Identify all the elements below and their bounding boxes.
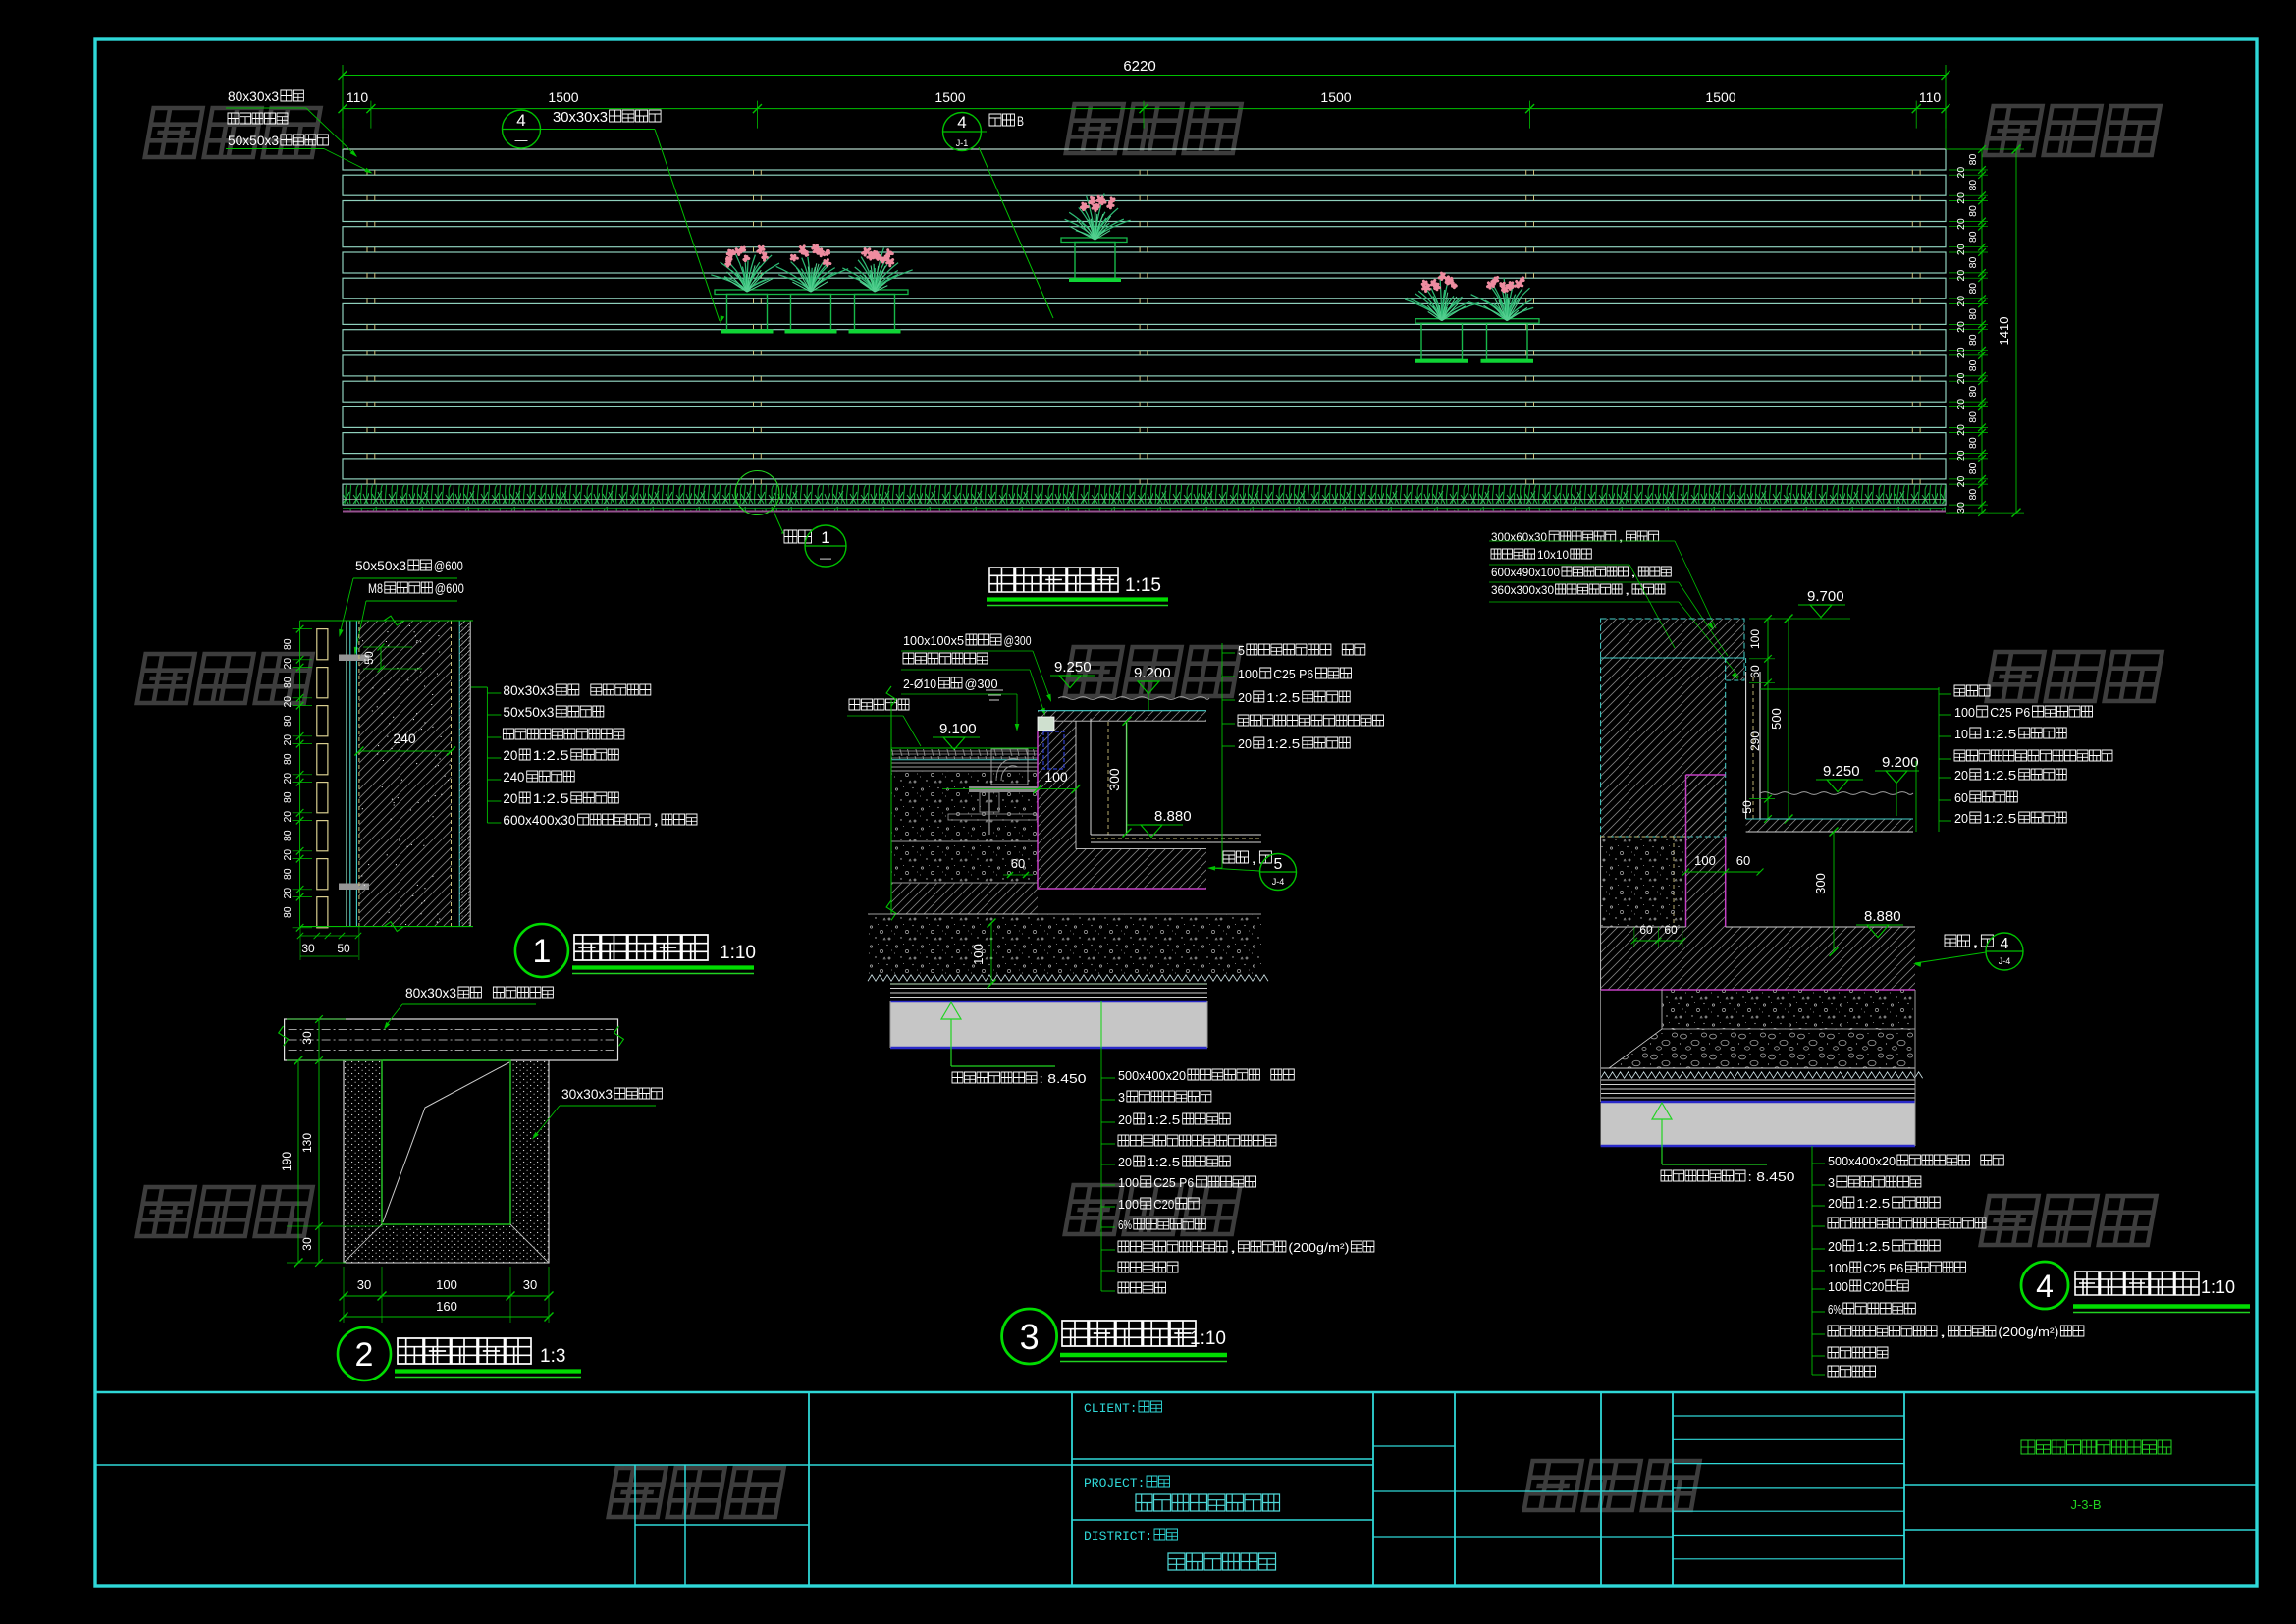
svg-text:100: 100 <box>1118 1197 1139 1212</box>
svg-text:1: 1 <box>532 933 551 970</box>
svg-text:20: 20 <box>1828 1239 1842 1254</box>
svg-text:50x50x3: 50x50x3 <box>355 558 406 573</box>
svg-text:1:2.5: 1:2.5 <box>1856 1196 1890 1211</box>
svg-text:: 8.450: : 8.450 <box>1040 1071 1087 1086</box>
svg-text:DISTRICT:: DISTRICT: <box>1084 1529 1152 1543</box>
svg-text:240: 240 <box>503 769 524 785</box>
svg-text:C25 P6: C25 P6 <box>1153 1175 1194 1190</box>
svg-text:1:10: 1:10 <box>1190 1328 1226 1349</box>
svg-text:20: 20 <box>1955 347 1967 358</box>
svg-text:80: 80 <box>1967 437 1979 449</box>
svg-text:CLIENT:: CLIENT: <box>1084 1401 1138 1416</box>
svg-text:100: 100 <box>1238 667 1258 681</box>
svg-text:,: , <box>1230 1240 1237 1255</box>
svg-text:—: — <box>515 133 528 147</box>
svg-text:20: 20 <box>1955 244 1967 255</box>
svg-text:80: 80 <box>1967 411 1979 423</box>
svg-text:60: 60 <box>1011 856 1025 871</box>
svg-text:1: 1 <box>821 528 829 547</box>
svg-text:J-1: J-1 <box>956 138 969 148</box>
svg-text:@600: @600 <box>434 558 463 573</box>
svg-text:60: 60 <box>1954 790 1968 805</box>
svg-text:100: 100 <box>1044 769 1068 785</box>
svg-text:3: 3 <box>1020 1317 1040 1357</box>
svg-text:4: 4 <box>957 113 966 132</box>
svg-text:50: 50 <box>337 942 350 955</box>
svg-text:1:2.5: 1:2.5 <box>533 790 569 806</box>
svg-text:80: 80 <box>1967 489 1979 501</box>
svg-text:M8: M8 <box>368 580 383 596</box>
svg-text:20: 20 <box>1238 736 1252 751</box>
svg-text:190: 190 <box>280 1152 294 1171</box>
svg-text:30: 30 <box>357 1277 371 1292</box>
svg-text:1500: 1500 <box>1705 89 1735 105</box>
svg-text:20: 20 <box>282 849 294 861</box>
svg-text:30: 30 <box>1955 502 1967 514</box>
svg-text:@300: @300 <box>965 677 998 691</box>
svg-text:80: 80 <box>282 830 294 841</box>
svg-text:20: 20 <box>1955 424 1967 436</box>
svg-text:5: 5 <box>1274 856 1283 873</box>
svg-text:50: 50 <box>1740 800 1754 814</box>
svg-text:80: 80 <box>1967 283 1979 295</box>
svg-text:300x60x30: 300x60x30 <box>1491 530 1547 544</box>
svg-text:C25 P6: C25 P6 <box>1863 1261 1903 1275</box>
svg-text:9.200: 9.200 <box>1882 754 1919 771</box>
svg-text:@600: @600 <box>435 580 464 596</box>
svg-text:20: 20 <box>282 658 294 670</box>
svg-text:3: 3 <box>1828 1175 1835 1190</box>
svg-text:1:3: 1:3 <box>540 1346 565 1367</box>
svg-text:80: 80 <box>282 677 294 688</box>
svg-text:80: 80 <box>1967 231 1979 243</box>
svg-text:100: 100 <box>1748 629 1762 649</box>
svg-text:100: 100 <box>1694 853 1716 868</box>
svg-text:500x400x20: 500x400x20 <box>1118 1068 1186 1083</box>
svg-text:20: 20 <box>1118 1112 1132 1127</box>
svg-text:80x30x3: 80x30x3 <box>228 88 279 104</box>
svg-text:240: 240 <box>393 731 416 746</box>
svg-text:100: 100 <box>971 944 986 965</box>
svg-text:80: 80 <box>282 715 294 727</box>
svg-text:8.880: 8.880 <box>1864 908 1901 925</box>
svg-text:290: 290 <box>1748 731 1762 751</box>
svg-text:20: 20 <box>1955 192 1967 204</box>
svg-text:500: 500 <box>1769 708 1784 730</box>
svg-text:3: 3 <box>1118 1090 1125 1105</box>
svg-text:1:2.5: 1:2.5 <box>1266 690 1300 705</box>
svg-text:20: 20 <box>1955 296 1967 307</box>
svg-text:30: 30 <box>523 1277 537 1292</box>
svg-text:1:2.5: 1:2.5 <box>1856 1239 1890 1254</box>
svg-text:600x400x30: 600x400x30 <box>503 812 575 828</box>
svg-text:,: , <box>1625 583 1630 597</box>
svg-text:C20: C20 <box>1153 1197 1174 1212</box>
svg-text:20: 20 <box>1955 373 1967 385</box>
svg-text:500x400x20: 500x400x20 <box>1828 1154 1896 1168</box>
svg-text:80: 80 <box>282 906 294 918</box>
svg-text:9.250: 9.250 <box>1054 659 1092 676</box>
svg-text:100x100x5: 100x100x5 <box>903 633 964 648</box>
svg-text:20: 20 <box>282 696 294 708</box>
svg-text:2: 2 <box>355 1336 374 1374</box>
svg-text:20: 20 <box>1118 1155 1132 1169</box>
svg-text:80: 80 <box>1967 462 1979 474</box>
svg-text:20: 20 <box>282 888 294 899</box>
svg-text:50x50x3: 50x50x3 <box>503 704 554 720</box>
svg-text:80: 80 <box>1967 205 1979 217</box>
svg-text:PROJECT:: PROJECT: <box>1084 1476 1145 1490</box>
svg-text:—: — <box>820 551 831 565</box>
svg-text:10: 10 <box>1954 727 1968 741</box>
svg-text:30: 30 <box>301 942 315 955</box>
svg-text:20: 20 <box>503 747 517 763</box>
svg-text:C25 P6: C25 P6 <box>1990 705 2030 720</box>
svg-text:J-4: J-4 <box>1272 877 1285 887</box>
svg-text:20: 20 <box>1828 1196 1842 1211</box>
svg-text:6%: 6% <box>1118 1218 1132 1232</box>
svg-text:20: 20 <box>1955 167 1967 179</box>
svg-text:9.200: 9.200 <box>1134 665 1171 681</box>
svg-text:20: 20 <box>282 734 294 746</box>
svg-text:J-3-B: J-3-B <box>2070 1497 2101 1512</box>
svg-text:: 8.450: : 8.450 <box>1748 1169 1795 1184</box>
svg-text:80: 80 <box>282 638 294 650</box>
svg-text:9.100: 9.100 <box>939 721 977 737</box>
svg-text:6%: 6% <box>1828 1302 1842 1317</box>
svg-text:C25 P6: C25 P6 <box>1273 667 1313 681</box>
svg-text:300: 300 <box>1813 873 1828 894</box>
svg-text:1:2.5: 1:2.5 <box>1147 1155 1180 1169</box>
svg-text:600x490x100: 600x490x100 <box>1491 566 1560 579</box>
svg-text:@300: @300 <box>1004 633 1032 648</box>
svg-text:1:2.5: 1:2.5 <box>1147 1112 1180 1127</box>
svg-text:,: , <box>653 812 660 828</box>
svg-text:J-4: J-4 <box>1999 956 2011 966</box>
svg-text:(200g/m²): (200g/m²) <box>1998 1325 2058 1339</box>
svg-text:80: 80 <box>1967 334 1979 346</box>
svg-text:50x50x3: 50x50x3 <box>228 133 279 148</box>
svg-text:360x300x30: 360x300x30 <box>1491 583 1554 597</box>
svg-text:110: 110 <box>1919 89 1942 105</box>
svg-text:100: 100 <box>1954 705 1975 720</box>
svg-text:20: 20 <box>1955 399 1967 410</box>
svg-text:60: 60 <box>1748 665 1762 678</box>
svg-text:4: 4 <box>2036 1269 2054 1304</box>
svg-text:110: 110 <box>347 89 369 105</box>
svg-text:80: 80 <box>1967 180 1979 191</box>
svg-text:1500: 1500 <box>1320 89 1351 105</box>
svg-text:6220: 6220 <box>1123 58 1155 75</box>
svg-text:1:2.5: 1:2.5 <box>1983 811 2016 826</box>
svg-text:,: , <box>1618 530 1624 544</box>
svg-text:80x30x3: 80x30x3 <box>405 985 456 1001</box>
svg-text:100: 100 <box>1828 1261 1848 1275</box>
svg-text:1410: 1410 <box>1997 317 2011 346</box>
svg-text:80: 80 <box>282 753 294 765</box>
svg-text:80: 80 <box>1967 308 1979 320</box>
svg-text:50: 50 <box>362 651 376 665</box>
svg-text:160: 160 <box>436 1299 457 1314</box>
svg-text:30x30x3: 30x30x3 <box>561 1086 613 1102</box>
svg-text:20: 20 <box>1955 321 1967 333</box>
svg-text:80x30x3: 80x30x3 <box>503 682 554 698</box>
svg-text:80: 80 <box>1967 257 1979 269</box>
svg-text:5: 5 <box>1238 643 1245 658</box>
svg-text:9.700: 9.700 <box>1807 588 1844 605</box>
svg-text:1500: 1500 <box>934 89 965 105</box>
svg-text:20: 20 <box>1955 476 1967 488</box>
svg-text:20: 20 <box>282 773 294 785</box>
svg-text:1:15: 1:15 <box>1125 575 1161 596</box>
svg-text:1:2.5: 1:2.5 <box>1983 727 2016 741</box>
svg-text:B: B <box>1017 113 1024 129</box>
svg-text:20: 20 <box>1954 811 1968 826</box>
svg-text:300: 300 <box>1106 768 1122 791</box>
svg-text:20: 20 <box>1955 218 1967 230</box>
svg-text:,: , <box>1251 850 1257 866</box>
svg-text:20: 20 <box>503 790 517 806</box>
svg-text:,: , <box>1972 934 1979 949</box>
svg-text:30: 30 <box>300 1237 314 1251</box>
svg-text:100: 100 <box>436 1277 457 1292</box>
svg-text:8.880: 8.880 <box>1154 808 1192 825</box>
svg-text:100: 100 <box>1828 1279 1848 1294</box>
svg-text:30x30x3: 30x30x3 <box>553 109 608 126</box>
svg-text:80: 80 <box>1967 359 1979 371</box>
svg-text:20: 20 <box>1954 768 1968 783</box>
svg-text:80: 80 <box>282 791 294 803</box>
svg-text:4: 4 <box>516 111 525 130</box>
svg-text:9.250: 9.250 <box>1823 763 1860 780</box>
svg-text:2-Ø10: 2-Ø10 <box>903 677 936 691</box>
svg-text:130: 130 <box>300 1133 314 1153</box>
svg-text:20: 20 <box>1238 690 1252 705</box>
svg-text:4: 4 <box>2001 936 2009 952</box>
svg-text:100: 100 <box>1118 1175 1139 1190</box>
svg-text:80: 80 <box>1967 154 1979 166</box>
svg-text:80: 80 <box>1967 386 1979 398</box>
svg-text:1:10: 1:10 <box>2201 1277 2235 1297</box>
svg-text:1500: 1500 <box>548 89 578 105</box>
svg-text:1:2.5: 1:2.5 <box>1983 768 2016 783</box>
svg-text:80: 80 <box>282 868 294 880</box>
svg-text:1:2.5: 1:2.5 <box>1266 736 1300 751</box>
svg-text:30: 30 <box>300 1031 314 1045</box>
svg-text:1:2.5: 1:2.5 <box>533 747 569 763</box>
svg-text:C20: C20 <box>1863 1279 1884 1294</box>
svg-text:20: 20 <box>1955 270 1967 282</box>
svg-text:(200g/m²): (200g/m²) <box>1288 1240 1349 1255</box>
svg-text:,: , <box>1940 1325 1947 1339</box>
svg-text:10x10: 10x10 <box>1537 548 1569 562</box>
svg-text:60: 60 <box>1736 853 1750 868</box>
svg-text:1:10: 1:10 <box>720 943 756 963</box>
svg-text:20: 20 <box>1955 450 1967 461</box>
svg-text:20: 20 <box>282 811 294 823</box>
